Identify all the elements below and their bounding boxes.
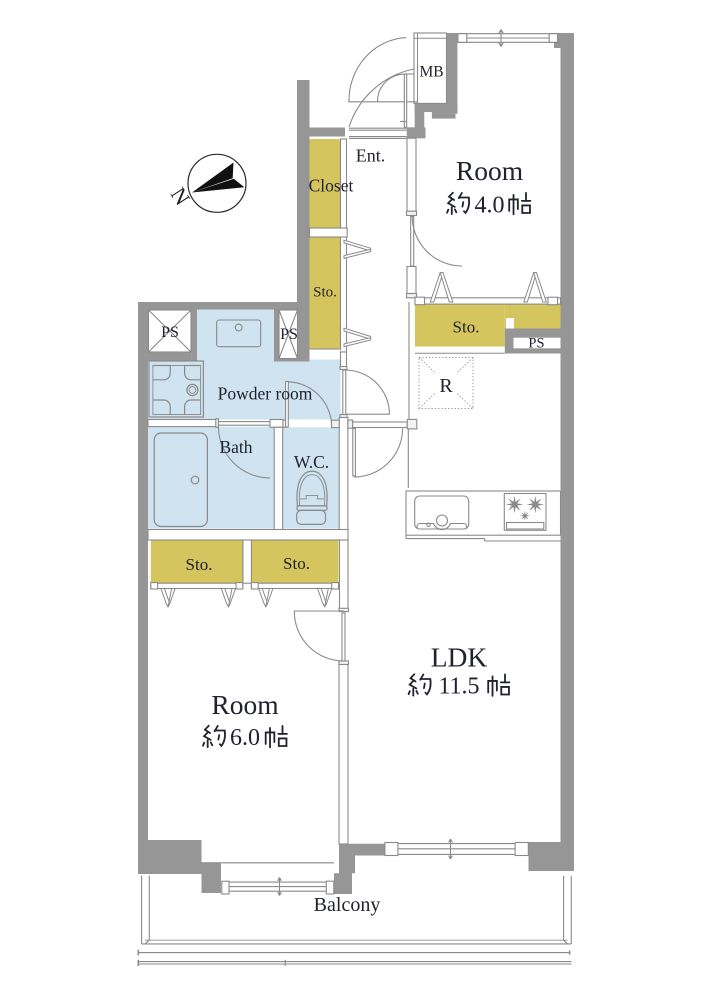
svg-text:Room: Room (211, 689, 278, 720)
svg-text:R: R (439, 375, 453, 397)
svg-text:4.0: 4.0 (475, 193, 505, 219)
svg-text:Sto.: Sto. (313, 285, 337, 301)
svg-text:MB: MB (419, 64, 443, 81)
svg-text:6.0: 6.0 (230, 725, 260, 751)
svg-text:PS: PS (528, 336, 544, 352)
svg-text:Sto.: Sto. (283, 554, 310, 573)
svg-text:Sto.: Sto. (453, 318, 480, 337)
svg-text:11.5: 11.5 (438, 674, 479, 700)
svg-text:Bath: Bath (219, 437, 252, 457)
svg-text:Room: Room (456, 155, 523, 186)
svg-text:LDK: LDK (431, 642, 488, 673)
svg-text:Closet: Closet (309, 176, 354, 196)
svg-text:W.C.: W.C. (294, 452, 329, 472)
svg-text:PS: PS (161, 324, 179, 341)
svg-text:PS: PS (280, 326, 298, 343)
svg-text:Sto.: Sto. (186, 555, 213, 574)
svg-text:Ent.: Ent. (356, 146, 386, 166)
svg-text:Powder room: Powder room (218, 384, 313, 404)
svg-text:Balcony: Balcony (314, 894, 381, 916)
